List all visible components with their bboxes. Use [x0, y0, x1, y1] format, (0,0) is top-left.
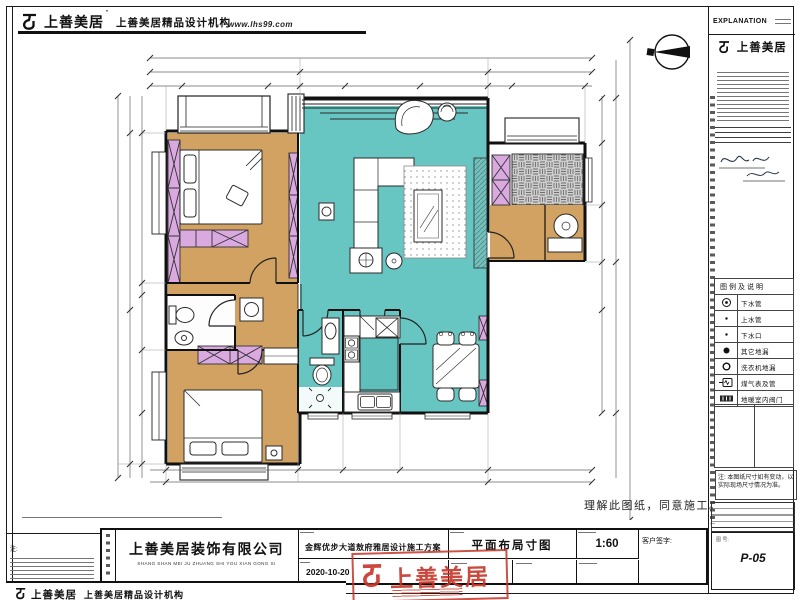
sidebar-explanation-bar: EXPLANATION [709, 10, 795, 35]
legend-title: 图例及说明 [715, 279, 793, 294]
floor-plan [100, 28, 700, 520]
toilet-main [310, 358, 334, 365]
sink-left [175, 331, 193, 345]
sheet-frame-inner-line [12, 6, 13, 594]
header-brand: 上善美居 [44, 12, 104, 32]
scale-subcell [576, 560, 639, 584]
legend-row: 其它地漏 [715, 342, 793, 358]
left-note-label: 注: [10, 547, 18, 553]
left-divider-line [6, 533, 100, 534]
toilet-left [169, 306, 176, 324]
washing-machine [240, 298, 263, 321]
room-laundry-tile [512, 154, 583, 205]
brand-mark-icon [14, 586, 28, 600]
company-pinyin: SHANG SHAN MEI JU ZHUANG SHI YOU XIAN GO… [115, 561, 298, 566]
open-circle-icon [715, 359, 738, 374]
sidebar-paragraph-2 [715, 127, 791, 145]
micro-note-line [22, 517, 222, 521]
scale-cell: 1:60 [576, 530, 639, 559]
sheet-number-label: 图 号: [716, 536, 729, 543]
lounge-chair [395, 100, 433, 134]
micro-text [516, 563, 532, 567]
vertical-micro-text [106, 534, 110, 578]
sidebar-brand-block: 上善美居 [709, 38, 795, 72]
client-sign-cell: 客户签字: [638, 530, 706, 583]
footer-strip: 上善美居 上善美居精品设计机构 [6, 581, 346, 600]
legend-row: 洗衣机地漏 [715, 358, 793, 374]
stool [386, 253, 402, 269]
stamp-brand-mark-icon [359, 560, 388, 589]
micro-text [579, 563, 597, 567]
drawing-date: 2020-10-20 [306, 567, 349, 577]
drawing-sheet: 上善美居 ” 上善美居精品设计机构 www.lhs99.com [0, 0, 800, 600]
laundry-basin [554, 214, 578, 238]
client-sign-label: 客户签字: [642, 536, 672, 546]
side-table [319, 203, 334, 220]
legend-row: 上水管 [715, 310, 793, 326]
title-block-side-cell [102, 530, 116, 583]
left-note-block: 注: [10, 538, 98, 580]
sidebar-brand: 上善美居 [737, 42, 787, 54]
brand-mark-icon [717, 39, 732, 54]
thin-rows [711, 502, 795, 532]
sidebar: EXPLANATION 上善美居 图例及说明 下水管 [708, 6, 795, 594]
micro-text [300, 562, 310, 566]
filled-circle-icon [715, 343, 738, 358]
legend-row: 煤气表及管 [715, 374, 793, 390]
footer-brand: 上善美居 [31, 587, 77, 600]
north-arrow-icon [647, 35, 690, 69]
explanation-title: EXPLANATION [713, 18, 767, 25]
signature-scribble [713, 148, 793, 186]
micro-text [578, 532, 596, 536]
micro-text [300, 532, 314, 536]
company-name: 上善美居装饰有限公司 [115, 539, 298, 559]
drain-double-circle-icon [715, 295, 738, 310]
legend-table: 图例及说明 下水管 上水管 下水口 其它地漏 洗衣机地漏 [714, 278, 794, 407]
coffee-table [414, 190, 442, 242]
stamp-micro-text [392, 588, 462, 597]
empty-table [714, 404, 794, 468]
sidebar-note: 注: 本图纸尺寸如有变动，以实际现场尺寸情况为准。 [715, 470, 797, 500]
scale-value: 1:60 [576, 538, 638, 550]
brand-mark-icon [20, 11, 40, 31]
sidebar-paragraph [717, 72, 789, 122]
tv-wall [474, 158, 487, 268]
header-brand-reg: ” [106, 10, 108, 17]
company-cell: 上善美居装饰有限公司 SHANG SHAN MEI JU ZHUANG SHI … [115, 530, 299, 583]
company-stamp: 上善美居 [351, 549, 508, 600]
gas-meter-icon [715, 375, 738, 390]
small-dot-icon [715, 327, 738, 342]
small-dot-icon [715, 311, 738, 326]
micro-text [775, 19, 791, 24]
sheet-number-cell: 图 号: P-05 [711, 532, 795, 590]
kitchen-island [360, 338, 398, 390]
statement-text: 理解此图纸，同意施工。 [584, 497, 722, 513]
footer-tagline: 上善美居精品设计机构 [84, 588, 184, 600]
legend-row: 下水口 [715, 326, 793, 342]
micro-text [450, 532, 464, 536]
subcell-divider [512, 560, 513, 584]
legend-row: 下水管 [715, 294, 793, 310]
empty-table-divider [754, 405, 755, 467]
sheet-number: P-05 [712, 551, 794, 565]
